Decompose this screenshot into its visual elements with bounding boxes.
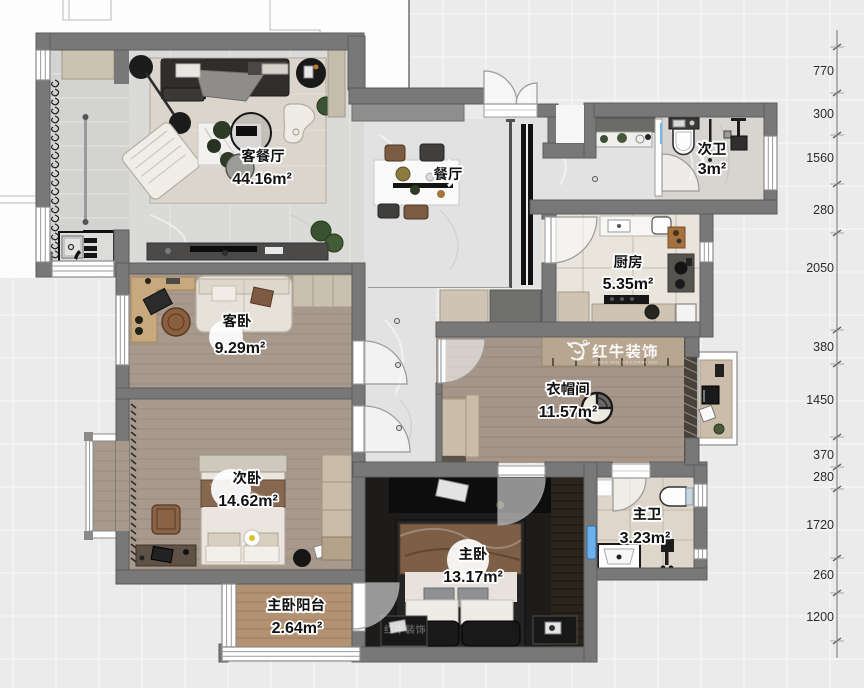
- svg-text:380: 380: [813, 340, 834, 354]
- svg-text:3.23m²: 3.23m²: [620, 530, 671, 547]
- svg-text:HONG NIU DECORATION: HONG NIU DECORATION: [593, 360, 658, 365]
- svg-text:9.29m²: 9.29m²: [215, 340, 266, 357]
- svg-text:5.35m²: 5.35m²: [603, 276, 654, 293]
- svg-text:1560: 1560: [806, 151, 834, 165]
- svg-text:44.16m²: 44.16m²: [232, 171, 292, 188]
- svg-text:280: 280: [813, 470, 834, 484]
- svg-text:2.64m²: 2.64m²: [272, 620, 323, 637]
- svg-text:300: 300: [813, 107, 834, 121]
- svg-text:370: 370: [813, 448, 834, 462]
- svg-text:1720: 1720: [806, 518, 834, 532]
- svg-text:1200: 1200: [806, 610, 834, 624]
- svg-text:260: 260: [813, 568, 834, 582]
- svg-text:1450: 1450: [806, 393, 834, 407]
- svg-text:2050: 2050: [806, 261, 834, 275]
- svg-text:14.62m²: 14.62m²: [218, 493, 278, 510]
- svg-text:3m²: 3m²: [698, 161, 726, 178]
- svg-text:11.57m²: 11.57m²: [539, 404, 598, 421]
- svg-text:13.17m²: 13.17m²: [443, 569, 503, 586]
- svg-text:770: 770: [813, 64, 834, 78]
- svg-text:280: 280: [813, 203, 834, 217]
